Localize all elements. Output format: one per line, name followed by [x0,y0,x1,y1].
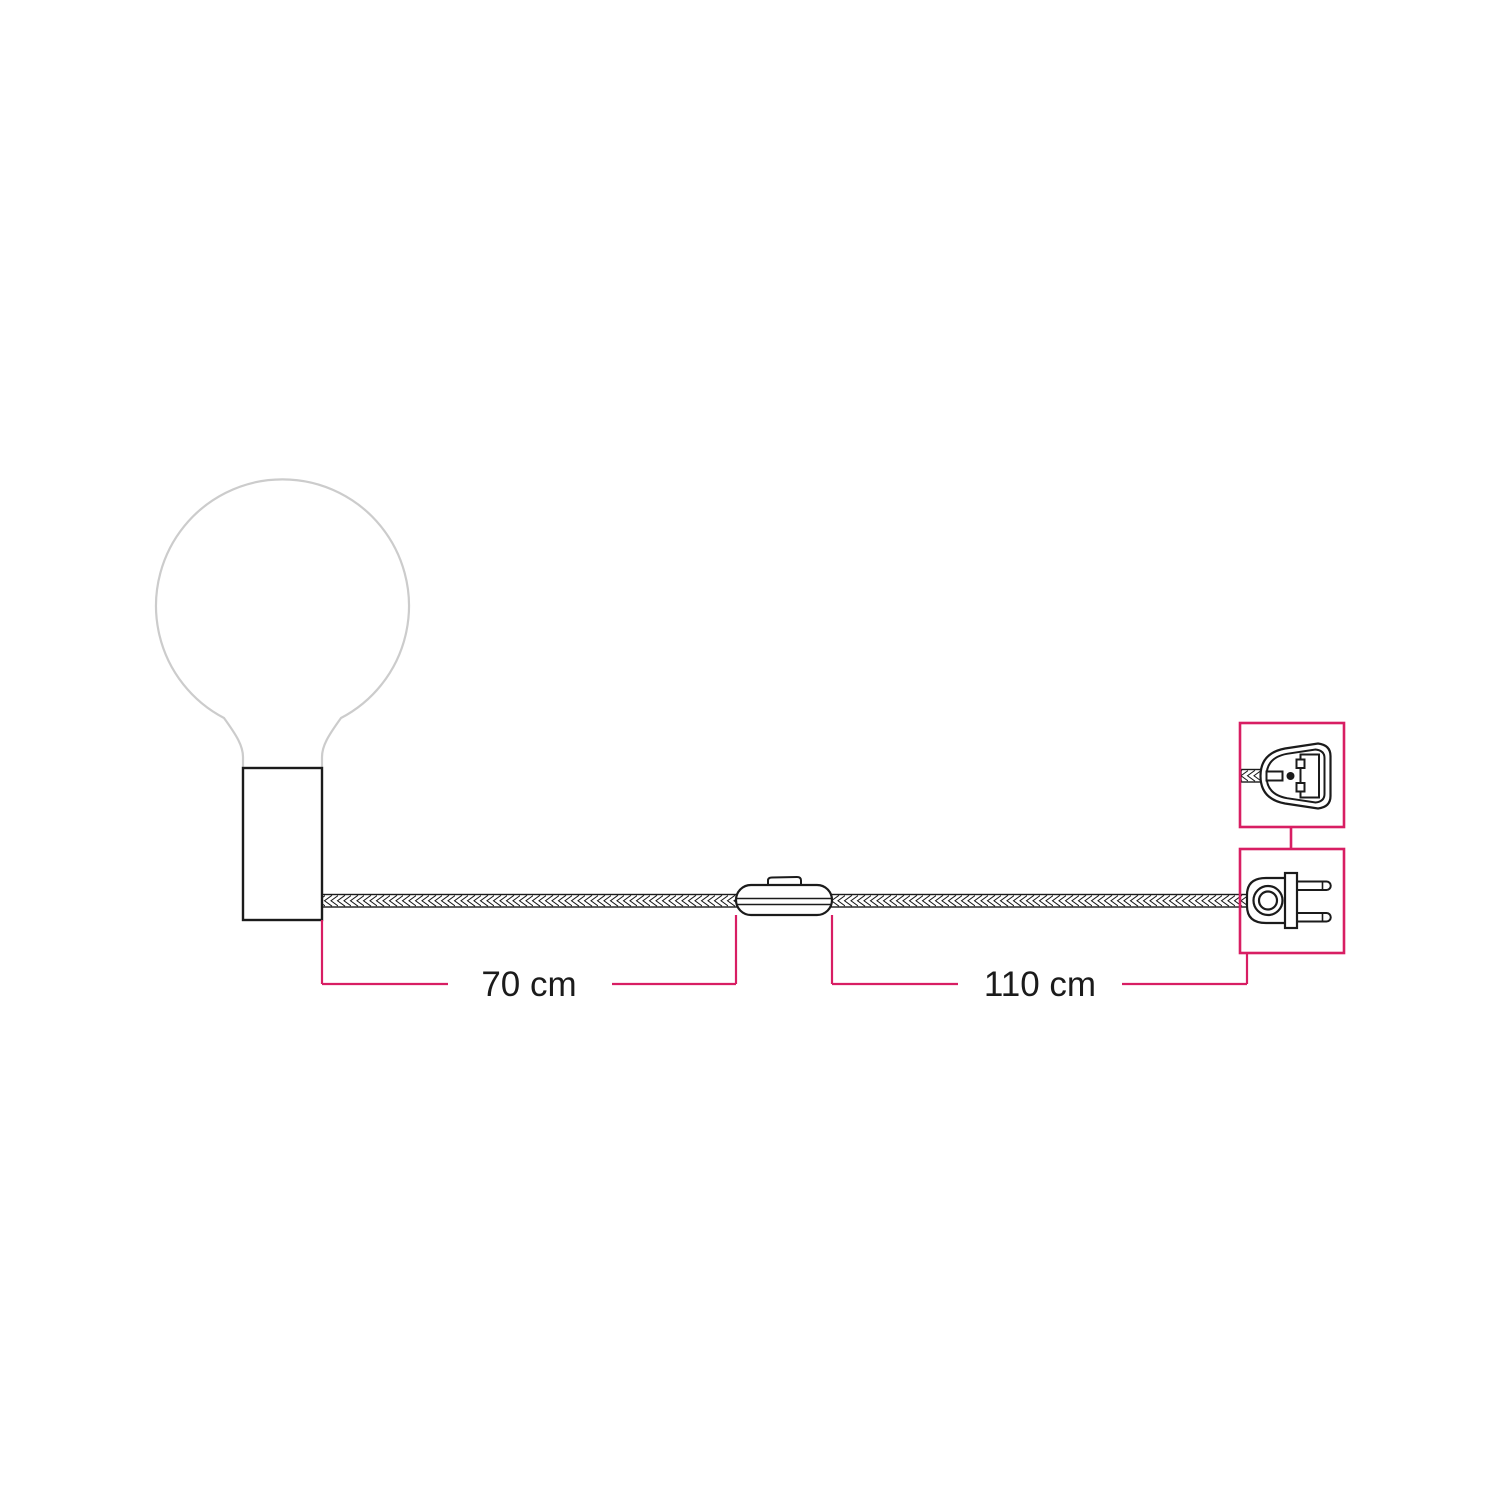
inline-switch-icon [736,877,832,915]
plug-ring-inner [1259,892,1277,910]
dimension-label-110cm: 110 cm [984,965,1096,1004]
switch-button [768,877,801,885]
globe-light-bulb-icon [156,479,409,768]
bulb-outline [156,479,409,768]
dimension-70cm: 70 cm [322,915,736,1004]
uk-plug-pin-left [1267,772,1283,781]
dimension-110cm: 110 cm [832,915,1247,1004]
uk-plug-adapter-icon [1261,744,1331,809]
lamp-holder [243,768,322,920]
uk-plug-center-dot [1287,772,1295,780]
diagram-svg: 70 cm 110 cm [0,0,1500,1500]
two-pin-euro-plug-icon [1247,873,1331,928]
switch-body [736,885,832,915]
uk-plug-pin-bottom [1297,783,1305,792]
dimension-label-70cm: 70 cm [481,965,576,1004]
uk-plug-pin-top [1297,760,1305,769]
plug-pin-top [1297,882,1331,891]
plug-pin-bottom [1297,913,1331,922]
plug-plate [1285,873,1297,928]
product-dimension-diagram: 70 cm 110 cm [0,0,1500,1500]
